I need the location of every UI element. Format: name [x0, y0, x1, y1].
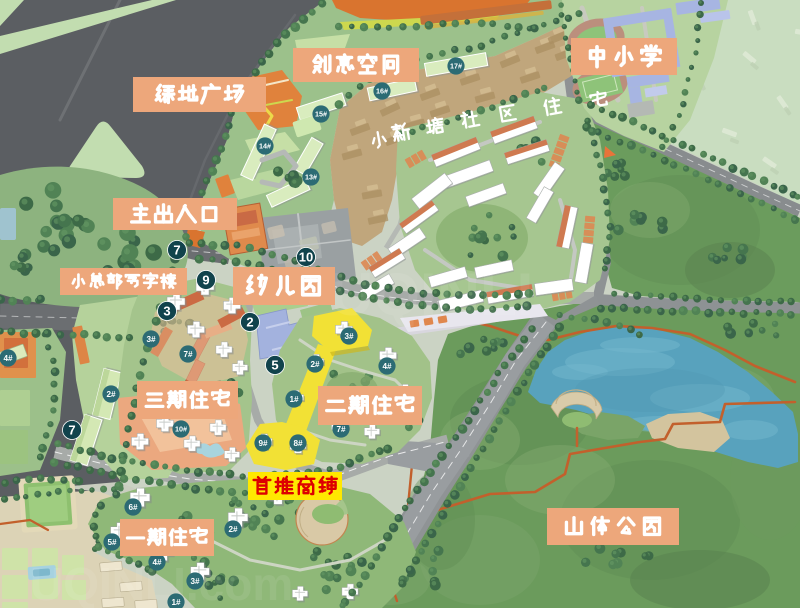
svg-text:2#: 2#: [228, 525, 238, 534]
svg-text:7#: 7#: [183, 350, 193, 359]
svg-text:16#: 16#: [376, 87, 388, 96]
svg-text:10: 10: [299, 250, 313, 265]
svg-text:3#: 3#: [190, 577, 200, 586]
svg-text:7: 7: [173, 243, 180, 258]
svg-text:14#: 14#: [259, 142, 271, 151]
svg-text:2#: 2#: [106, 390, 116, 399]
svg-text:1#: 1#: [171, 598, 181, 607]
svg-text:2#: 2#: [310, 360, 320, 369]
svg-text:UQINLI: UQINLI: [330, 261, 533, 328]
svg-text:1#: 1#: [289, 395, 299, 404]
svg-text:3: 3: [163, 304, 170, 319]
svg-text:3#: 3#: [146, 335, 156, 344]
svg-text:17#: 17#: [450, 62, 462, 71]
svg-text:4#: 4#: [382, 362, 392, 371]
svg-text:8#: 8#: [293, 439, 303, 448]
svg-text:3#: 3#: [344, 332, 354, 341]
svg-text:5#: 5#: [107, 538, 117, 547]
svg-text:7#: 7#: [336, 425, 346, 434]
svg-text:6#: 6#: [128, 503, 138, 512]
svg-text:5: 5: [271, 358, 278, 373]
svg-text:9#: 9#: [258, 439, 268, 448]
svg-text:4#: 4#: [3, 354, 13, 363]
svg-text:7: 7: [68, 423, 75, 438]
svg-text:9: 9: [202, 273, 209, 288]
svg-text:13#: 13#: [305, 173, 317, 182]
svg-text:2: 2: [246, 315, 253, 330]
svg-text:10#: 10#: [175, 425, 187, 434]
svg-text:4#: 4#: [152, 558, 162, 567]
svg-text:15#: 15#: [315, 110, 327, 119]
